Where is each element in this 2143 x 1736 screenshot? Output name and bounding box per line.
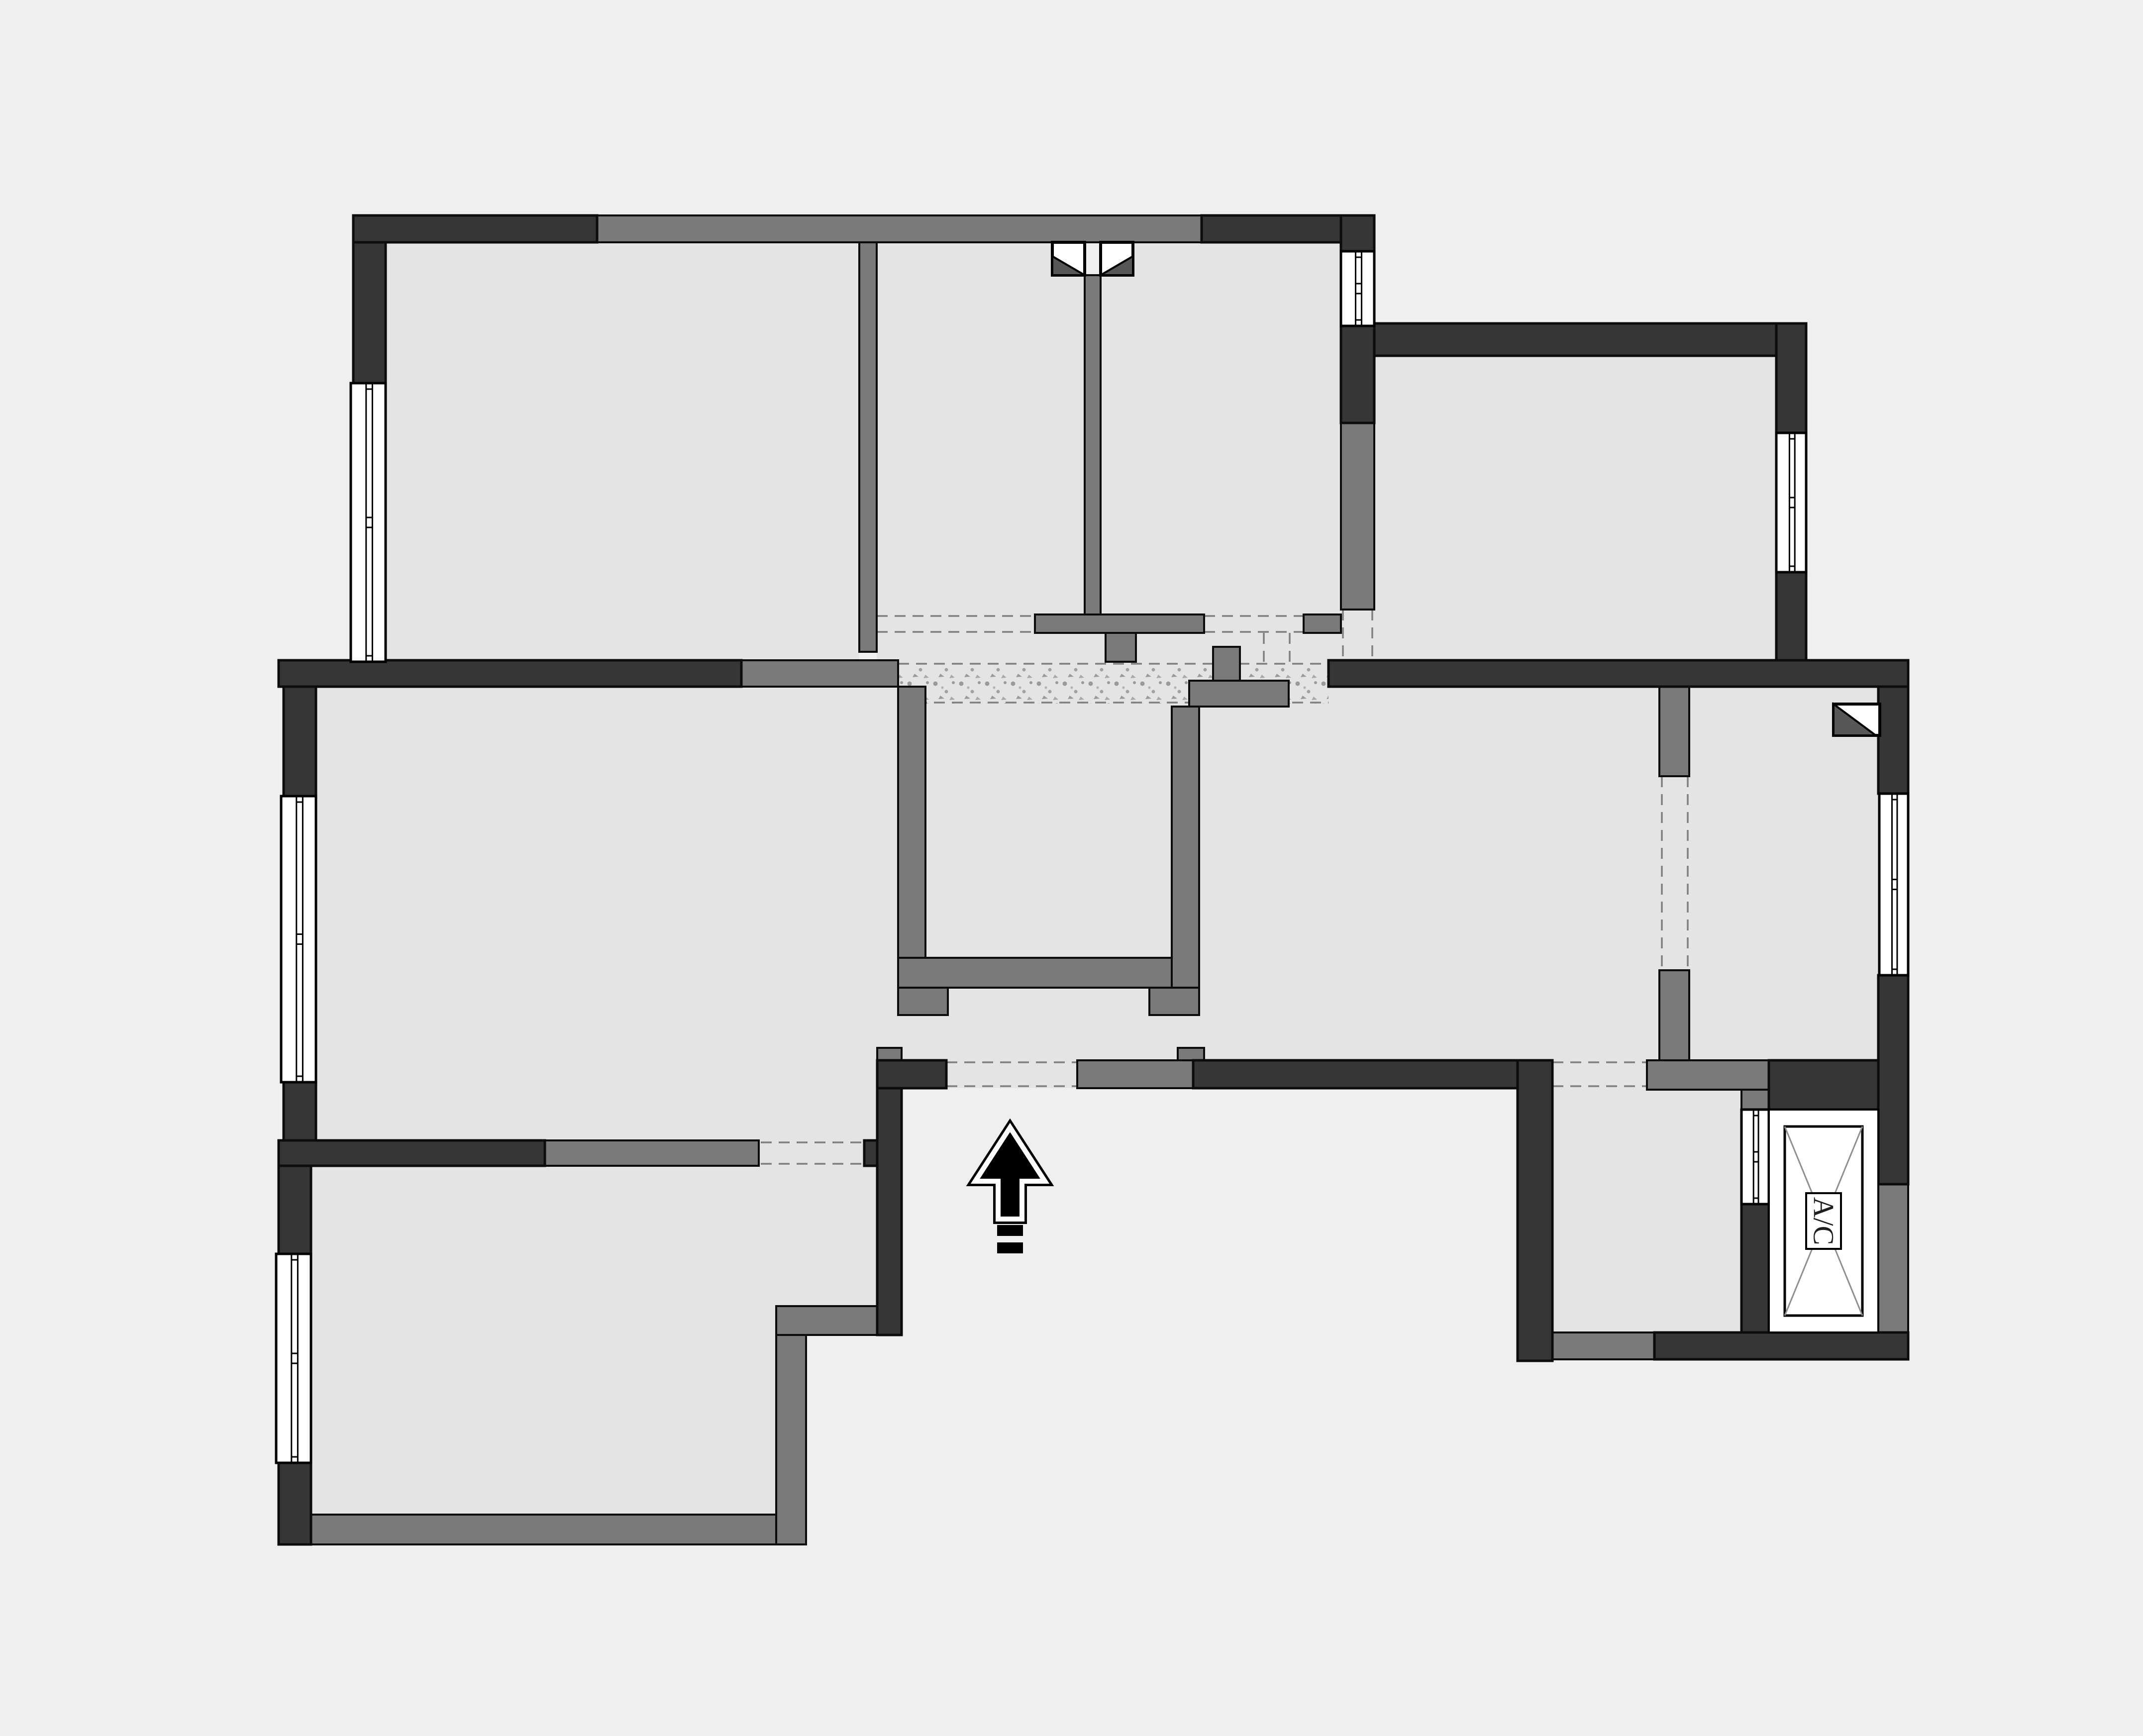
window-frame <box>351 383 386 662</box>
window-frame <box>1741 1110 1769 1204</box>
wall-new-segment <box>898 988 948 1015</box>
window-top-middle-right <box>1341 251 1374 326</box>
wall-new-segment <box>1189 681 1289 707</box>
wall-existing-segment <box>1328 660 1908 687</box>
wall-new-segment <box>776 1306 877 1335</box>
ac-label: A/C <box>1808 1197 1840 1245</box>
wall-new-segment <box>1878 1184 1908 1343</box>
wall-new-segment <box>877 1048 902 1060</box>
flue-niche-left <box>1052 242 1085 275</box>
floor-patch <box>1552 1090 1741 1332</box>
wall-existing-segment <box>1741 1204 1769 1332</box>
wall-existing-segment <box>1878 975 1908 1184</box>
wall-new-segment <box>859 242 877 652</box>
wall-existing-segment <box>279 1166 311 1254</box>
wall-existing-segment <box>353 242 386 383</box>
wall-existing-segment <box>1654 1332 1908 1359</box>
window-frame <box>276 1254 311 1463</box>
floor-patch <box>946 1060 1077 1088</box>
wall-existing-segment <box>864 1140 877 1166</box>
wall-new-segment <box>776 1335 806 1544</box>
wall-new-segment <box>898 958 1199 988</box>
wall-new-segment <box>1035 614 1204 633</box>
entry-arrow <box>975 1127 1045 1219</box>
window-frame <box>281 796 316 1082</box>
floor-patch <box>1552 1060 1647 1090</box>
wall-new-segment <box>1304 614 1341 633</box>
wall-existing-segment <box>877 1088 902 1335</box>
ac-platform-group: A/C <box>1769 1110 1878 1332</box>
wall-new-segment <box>1172 707 1199 988</box>
window-frame <box>1341 251 1374 326</box>
window-top-left-room <box>351 383 386 662</box>
wall-new-segment <box>1659 970 1689 1060</box>
wall-new-segment <box>1085 275 1101 617</box>
wall-new-segment <box>1149 988 1199 1015</box>
wall-existing-segment <box>877 1060 946 1088</box>
floor-plan-canvas: A/C <box>0 0 2143 1736</box>
floor-plan-svg: A/C <box>0 0 2143 1736</box>
wall-new-segment <box>597 215 1202 242</box>
floor-patch <box>1341 610 1374 662</box>
wall-existing-segment <box>1518 1060 1552 1361</box>
floor-patch <box>877 242 1085 663</box>
floor-patch <box>1101 242 1341 663</box>
wall-new-segment <box>545 1140 759 1166</box>
wall-existing-segment <box>1193 1060 1552 1088</box>
wall-existing-segment <box>279 1463 311 1544</box>
wall-new-segment <box>1659 687 1689 776</box>
entry-arrow-bar <box>997 1242 1023 1253</box>
wall-existing-segment <box>1374 323 1806 356</box>
entry-arrow-bar <box>997 1225 1023 1236</box>
wall-existing-segment <box>284 687 316 796</box>
floor-patch <box>386 242 859 660</box>
wall-existing-segment <box>1776 572 1806 662</box>
window-bottom-right-room <box>1741 1110 1769 1204</box>
wall-existing-segment <box>279 1140 545 1166</box>
wall-new-segment <box>1552 1332 1654 1359</box>
window-top-right-room <box>1776 433 1806 572</box>
wall-existing-segment <box>353 215 597 242</box>
wall-existing-segment <box>1776 323 1806 433</box>
wall-new-segment <box>1647 1060 1769 1090</box>
window-frame <box>1776 433 1806 572</box>
wall-existing-segment <box>1341 326 1374 423</box>
wall-new-segment <box>279 1515 806 1544</box>
window-living-left <box>281 796 316 1082</box>
wall-existing-segment <box>1341 215 1374 251</box>
wall-new-segment <box>1106 633 1136 662</box>
wall-existing-segment <box>279 660 741 687</box>
door-swing-right-room <box>1834 704 1880 735</box>
floor-patch <box>759 1140 864 1166</box>
ac-platform: A/C <box>1769 1110 1878 1332</box>
floor-patch <box>1374 356 1776 660</box>
wall-new-segment <box>1341 423 1374 610</box>
wall-new-segment <box>1077 1060 1193 1088</box>
wall-existing-segment <box>1878 687 1908 794</box>
wall-new-segment <box>1178 1048 1204 1060</box>
wall-new-segment <box>1741 1090 1769 1110</box>
flue-niche-right <box>1101 242 1133 275</box>
wall-new-segment <box>741 660 898 687</box>
entry-arrow-group <box>975 1127 1045 1253</box>
window-bottom-left-room <box>276 1254 311 1463</box>
wall-new-segment <box>1213 647 1240 681</box>
window-right-middle <box>1879 794 1908 975</box>
window-frame <box>1879 794 1908 975</box>
